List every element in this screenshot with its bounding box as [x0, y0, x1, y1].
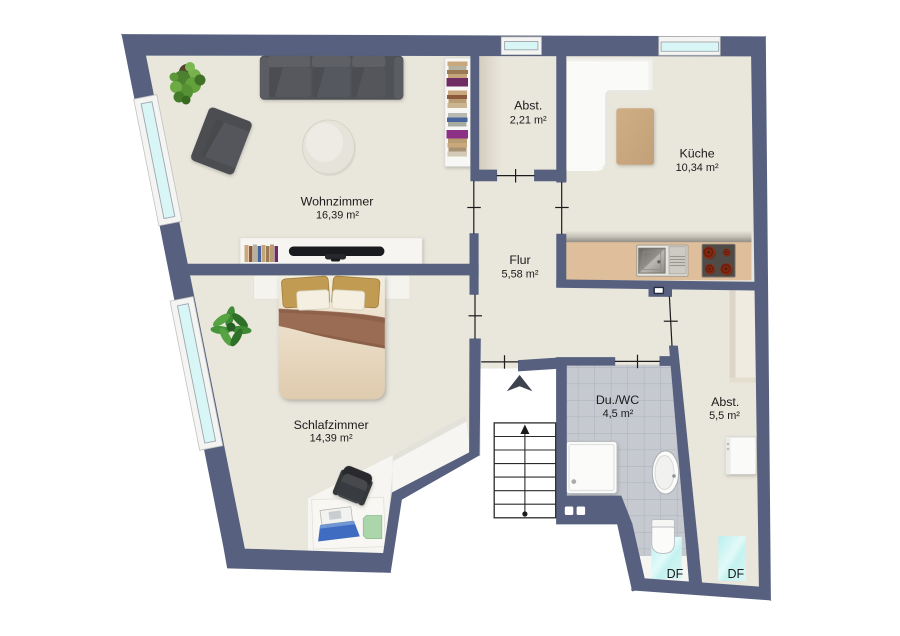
svg-text:Küche: Küche — [680, 147, 715, 161]
svg-text:Wohnzimmer: Wohnzimmer — [301, 195, 374, 209]
svg-text:DF: DF — [667, 567, 684, 581]
svg-text:4,5 m²: 4,5 m² — [603, 408, 634, 420]
svg-text:16,39 m²: 16,39 m² — [316, 209, 359, 221]
svg-text:2,21 m²: 2,21 m² — [510, 115, 547, 127]
svg-text:5,58 m²: 5,58 m² — [502, 268, 539, 280]
svg-text:Abst.: Abst. — [711, 395, 739, 409]
svg-text:Du./WC: Du./WC — [596, 393, 639, 407]
svg-text:DF: DF — [727, 567, 744, 581]
svg-text:Flur: Flur — [509, 253, 530, 267]
svg-text:10,34 m²: 10,34 m² — [676, 162, 719, 174]
svg-text:Abst.: Abst. — [514, 99, 542, 113]
svg-text:5,5 m²: 5,5 m² — [709, 410, 740, 422]
svg-text:Schlafzimmer: Schlafzimmer — [294, 418, 369, 432]
svg-text:14,39 m²: 14,39 m² — [310, 433, 353, 445]
